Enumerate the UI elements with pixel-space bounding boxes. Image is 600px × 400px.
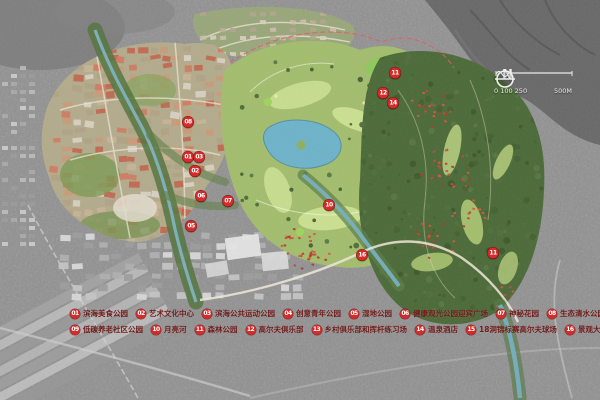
legend-badge-number: 10 <box>151 325 161 335</box>
legend-label: 景观大道 <box>578 324 600 335</box>
legend-label: 滨海美食公园 <box>83 308 128 319</box>
legend-item: 1518洞锦标赛高尔夫球场 <box>466 324 557 335</box>
legend-badge-number: 13 <box>312 325 322 335</box>
legend-badge-number: 04 <box>283 309 293 319</box>
legend-item: 09低碳养老社区公园 <box>70 324 143 335</box>
legend-badge-number: 05 <box>349 309 359 319</box>
legend-label: 乡村俱乐部和挥杆练习场 <box>325 324 408 335</box>
legend-row: 01滨海美食公园02艺术文化中心03滨海公共运动公园04创意青年公园05湿地公园… <box>70 308 600 319</box>
legend-badge-number: 06 <box>400 309 410 319</box>
legend-label: 温泉酒店 <box>428 324 458 335</box>
legend-badge-number: 12 <box>246 325 256 335</box>
legend-badge-number: 08 <box>547 309 557 319</box>
legend-item: 14温泉酒店 <box>415 324 458 335</box>
legend-item: 03滨海公共运动公园 <box>202 308 275 319</box>
legend-row: 09低碳养老社区公园10月亮河11森林公园12高尔夫俱乐部13乡村俱乐部和挥杆练… <box>70 324 600 335</box>
north-indicator: N 0 100 250 500M <box>494 68 584 95</box>
legend-badge-number: 15 <box>466 325 476 335</box>
legend-label: 健康观光公园迎宾广场 <box>413 308 488 319</box>
legend-item: 08生态清水公园 <box>547 308 600 319</box>
legend-item: 10月亮河 <box>151 324 187 335</box>
legend: 01滨海美食公园02艺术文化中心03滨海公共运动公园04创意青年公园05湿地公园… <box>70 308 600 335</box>
legend-label: 湿地公园 <box>362 308 392 319</box>
legend-label: 滨海公共运动公园 <box>215 308 275 319</box>
legend-badge-number: 14 <box>415 325 425 335</box>
legend-item: 11森林公园 <box>195 324 238 335</box>
legend-label: 生态清水公园 <box>560 308 600 319</box>
legend-item: 07神秘花园 <box>496 308 539 319</box>
legend-badge-number: 07 <box>496 309 506 319</box>
legend-item: 06健康观光公园迎宾广场 <box>400 308 488 319</box>
legend-badge-number: 02 <box>136 309 146 319</box>
legend-item: 02艺术文化中心 <box>136 308 194 319</box>
legend-label: 神秘花园 <box>509 308 539 319</box>
legend-badge-number: 09 <box>70 325 80 335</box>
map-canvas: 08010302060705101112141611 N 0 100 250 5… <box>0 0 600 400</box>
legend-label: 艺术文化中心 <box>149 308 194 319</box>
legend-label: 森林公园 <box>208 324 238 335</box>
legend-item: 01滨海美食公园 <box>70 308 128 319</box>
legend-label: 月亮河 <box>164 324 187 335</box>
scale-tick-right: 500M <box>554 87 572 95</box>
legend-label: 18洞锦标赛高尔夫球场 <box>479 324 557 335</box>
legend-label: 创意青年公园 <box>296 308 341 319</box>
legend-item: 12高尔夫俱乐部 <box>246 324 304 335</box>
masterplan-rendering <box>0 0 600 400</box>
legend-item: 05湿地公园 <box>349 308 392 319</box>
legend-label: 低碳养老社区公园 <box>83 324 143 335</box>
legend-item: 16景观大道 <box>565 324 600 335</box>
legend-item: 13乡村俱乐部和挥杆练习场 <box>312 324 408 335</box>
legend-item: 04创意青年公园 <box>283 308 341 319</box>
legend-badge-number: 16 <box>565 325 575 335</box>
legend-badge-number: 11 <box>195 325 205 335</box>
legend-badge-number: 01 <box>70 309 80 319</box>
legend-label: 高尔夫俱乐部 <box>259 324 304 335</box>
legend-badge-number: 03 <box>202 309 212 319</box>
scale-bar-line <box>494 68 576 78</box>
